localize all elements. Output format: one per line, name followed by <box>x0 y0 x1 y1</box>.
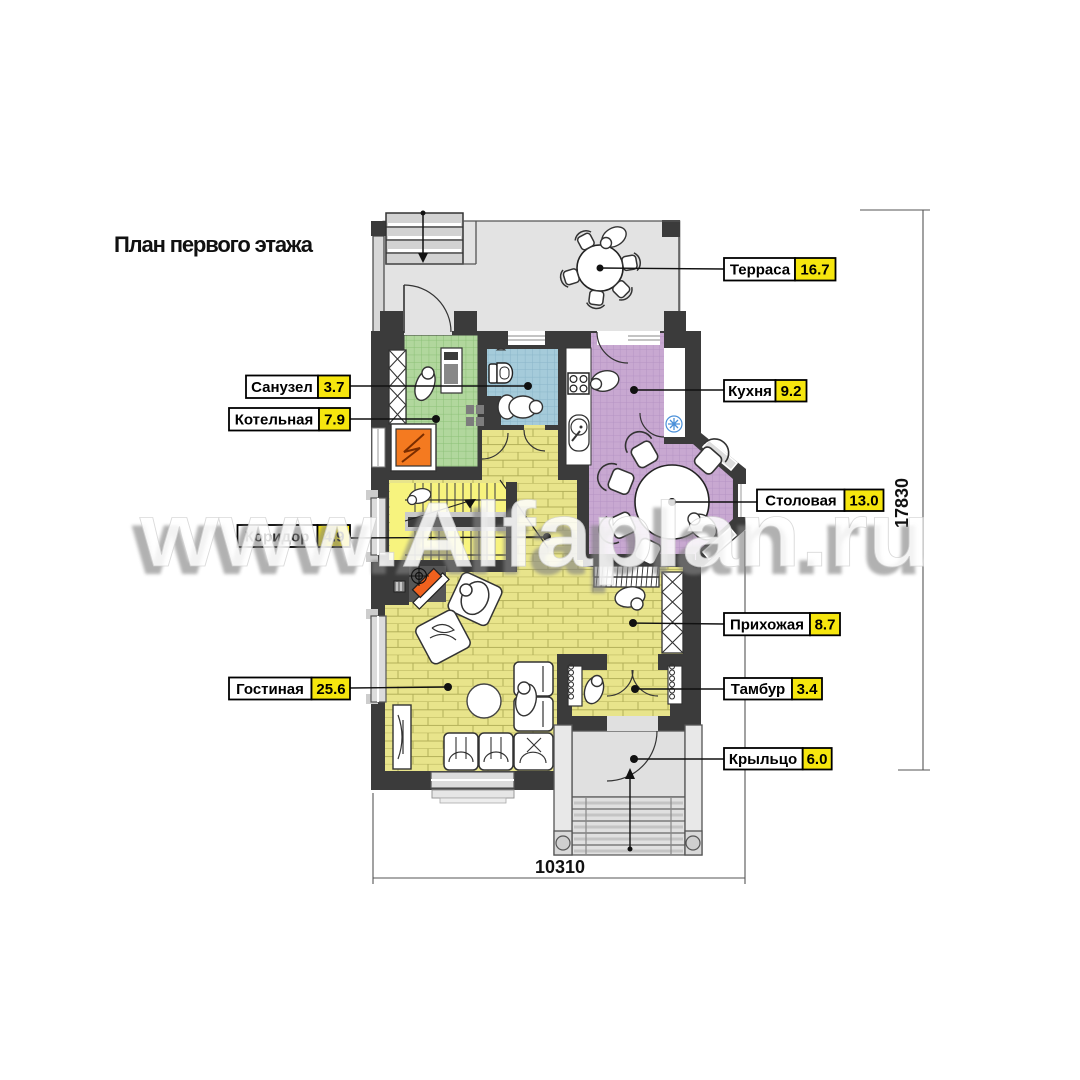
svg-text:8.7: 8.7 <box>815 617 836 634</box>
svg-text:Прихожая: Прихожая <box>730 617 804 634</box>
svg-text:7.9: 7.9 <box>324 412 345 429</box>
svg-text:Кухня: Кухня <box>728 383 772 400</box>
svg-text:Котельная: Котельная <box>235 412 314 429</box>
svg-text:Гостиная: Гостиная <box>236 681 304 698</box>
svg-text:3.7: 3.7 <box>324 379 345 396</box>
svg-text:Крыльцо: Крыльцо <box>729 751 797 768</box>
svg-text:3.4: 3.4 <box>797 681 819 698</box>
svg-text:16.7: 16.7 <box>800 262 829 279</box>
svg-text:6.0: 6.0 <box>807 751 828 768</box>
svg-text:Терраса: Терраса <box>730 262 791 279</box>
svg-text:Санузел: Санузел <box>251 379 313 396</box>
svg-text:25.6: 25.6 <box>316 681 345 698</box>
svg-text:10310: 10310 <box>535 857 585 877</box>
svg-text:Тамбур: Тамбур <box>731 681 785 698</box>
svg-text:www.Alfaplan.ru: www.Alfaplan.ru <box>139 484 930 586</box>
svg-text:План первого этажа: План первого этажа <box>114 232 314 257</box>
svg-text:9.2: 9.2 <box>781 383 802 400</box>
